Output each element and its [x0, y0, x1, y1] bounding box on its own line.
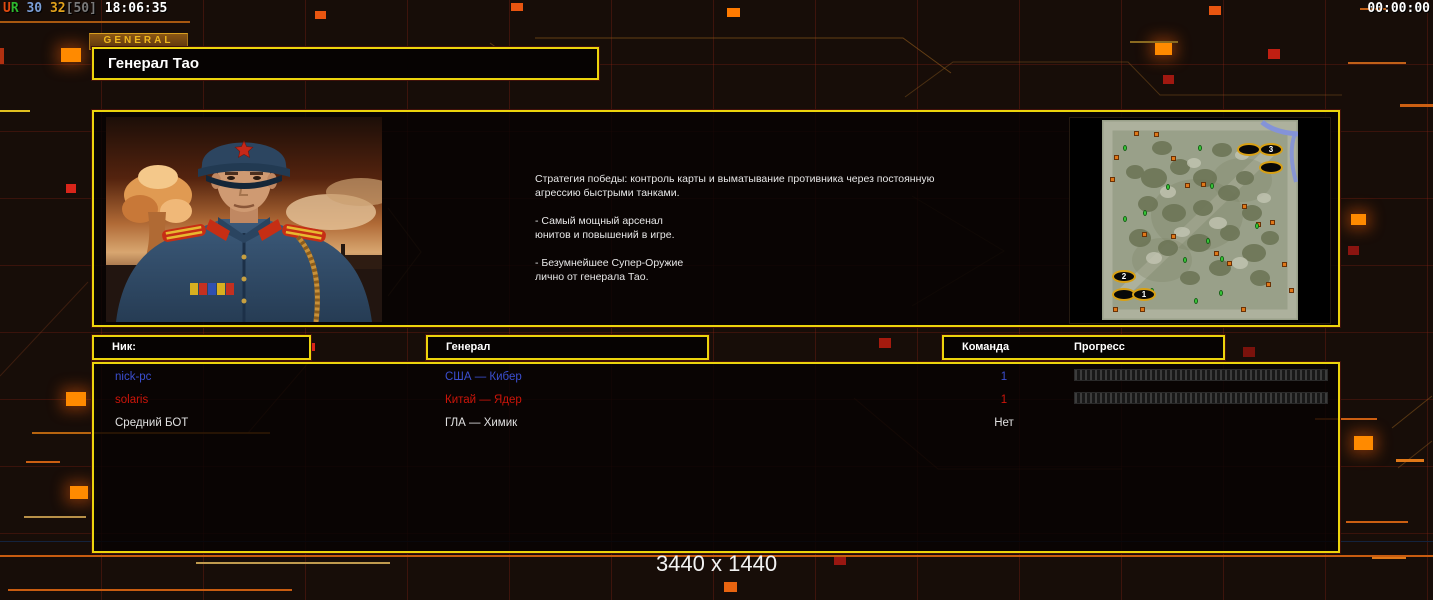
supply-marker-icon: [1266, 282, 1271, 287]
decor-square: [315, 11, 326, 19]
decor-square: [1351, 214, 1366, 225]
decor-square: [1268, 49, 1280, 59]
minimap: 321: [1069, 117, 1331, 324]
start-position-marker: 2: [1112, 270, 1136, 283]
decor-line: [1130, 41, 1178, 43]
decor-square: [66, 184, 76, 193]
fps-overlay-segment: U: [3, 1, 11, 16]
supply-marker-icon: [1110, 177, 1115, 182]
fps-overlay-segment: R: [11, 1, 27, 16]
decor-square: [61, 48, 81, 62]
info-panel: Стратегия победы: контроль карты и вымат…: [92, 110, 1340, 327]
fps-overlay-segment: 30: [26, 1, 49, 16]
minimap-markers: 321: [1102, 120, 1298, 320]
players-panel: nick-pcСША — Кибер1solarisКитай — Ядер1С…: [92, 362, 1340, 553]
progress-bar: [1074, 392, 1328, 404]
start-position-marker: 1: [1132, 288, 1156, 301]
supply-marker-icon: [1185, 183, 1190, 188]
supply-marker-icon: [1289, 288, 1294, 293]
supply-marker-icon: [1140, 307, 1145, 312]
tech-marker-icon: [1206, 238, 1210, 244]
player-general: США — Кибер: [445, 365, 522, 389]
progress-bar: [1074, 369, 1328, 381]
tech-marker-icon: [1210, 183, 1214, 189]
resolution-label: 3440 x 1440: [656, 551, 777, 577]
fps-overlay-segment: [50]: [66, 1, 105, 16]
general-title-box: Генерал Тао: [92, 47, 599, 80]
supply-marker-icon: [1201, 182, 1206, 187]
fps-overlay: UR 30 32[50] 18:06:35: [3, 1, 167, 16]
decor-square: [724, 582, 737, 592]
decor-line: [0, 21, 190, 23]
supply-marker-icon: [1154, 132, 1159, 137]
game-timer: 00:00:00: [1367, 1, 1430, 16]
header-general-label: Генерал: [446, 341, 490, 353]
decor-line: [1346, 521, 1408, 523]
decor-square: [1243, 347, 1255, 357]
start-position-marker-empty: [1259, 161, 1283, 174]
header-progress-label: Прогресс: [1074, 337, 1125, 358]
header-team-label: Команда: [962, 337, 1009, 358]
tech-marker-icon: [1123, 145, 1127, 151]
supply-marker-icon: [1241, 307, 1246, 312]
general-portrait: [106, 117, 382, 322]
decor-line: [24, 516, 86, 518]
supply-marker-icon: [1270, 220, 1275, 225]
supply-marker-icon: [1114, 155, 1119, 160]
player-team: Нет: [974, 411, 1034, 435]
fps-overlay-segment: 32: [50, 1, 66, 16]
decor-square: [1209, 6, 1221, 15]
supply-marker-icon: [1214, 251, 1219, 256]
decor-square: [1155, 42, 1172, 55]
decor-square: [879, 338, 891, 348]
supply-marker-icon: [1142, 232, 1147, 237]
decor-line: [1396, 459, 1424, 462]
header-general: Генерал: [426, 335, 709, 360]
player-nick: solaris: [115, 388, 148, 412]
header-team-progress: Команда Прогресс: [942, 335, 1225, 360]
supply-marker-icon: [1113, 307, 1118, 312]
tech-marker-icon: [1166, 184, 1170, 190]
tech-marker-icon: [1123, 216, 1127, 222]
player-team: 1: [974, 388, 1034, 412]
supply-marker-icon: [1282, 262, 1287, 267]
decor-square: [1163, 75, 1174, 84]
decor-square: [0, 48, 4, 64]
header-nick: Ник:: [92, 335, 311, 360]
player-nick: Средний БОТ: [115, 411, 188, 435]
table-row: solarisКитай — Ядер1: [94, 388, 1338, 412]
header-nick-label: Ник:: [112, 341, 136, 353]
start-position-marker: 3: [1259, 143, 1283, 156]
decor-square: [66, 392, 86, 406]
player-general: Китай — Ядер: [445, 388, 522, 412]
table-row: Средний БОТГЛА — ХимикНет: [94, 411, 1338, 435]
decor-line: [0, 110, 30, 112]
player-general: ГЛА — Химик: [445, 411, 517, 435]
player-nick: nick-pc: [115, 365, 151, 389]
supply-marker-icon: [1171, 156, 1176, 161]
decor-square: [70, 486, 88, 499]
loading-screen: UR 30 32[50] 18:06:35 00:00:00 GENERAL Г…: [0, 0, 1433, 600]
tech-marker-icon: [1220, 256, 1224, 262]
table-row: nick-pcСША — Кибер1: [94, 365, 1338, 389]
decor-line: [1348, 62, 1406, 64]
tech-marker-icon: [1194, 298, 1198, 304]
decor-line: [8, 589, 292, 591]
supply-marker-icon: [1134, 131, 1139, 136]
decor-line: [196, 562, 390, 564]
fps-overlay-segment: 18:06:35: [105, 1, 168, 16]
tech-marker-icon: [1198, 145, 1202, 151]
supply-marker-icon: [1242, 204, 1247, 209]
decor-line: [26, 461, 60, 463]
tech-marker-icon: [1255, 223, 1259, 229]
decor-square: [511, 3, 523, 11]
tech-marker-icon: [1219, 290, 1223, 296]
decor-square: [1354, 436, 1373, 450]
tech-marker-icon: [1183, 257, 1187, 263]
supply-marker-icon: [1227, 261, 1232, 266]
player-team: 1: [974, 365, 1034, 389]
tech-marker-icon: [1143, 210, 1147, 216]
decor-square: [727, 8, 740, 17]
supply-marker-icon: [1171, 234, 1176, 239]
decor-line: [1400, 104, 1433, 107]
decor-square: [1348, 246, 1359, 255]
general-name: Генерал Тао: [108, 55, 199, 72]
map-preview: 321: [1102, 120, 1298, 320]
start-position-marker-empty: [1237, 143, 1261, 156]
strategy-text: Стратегия победы: контроль карты и вымат…: [535, 173, 935, 285]
